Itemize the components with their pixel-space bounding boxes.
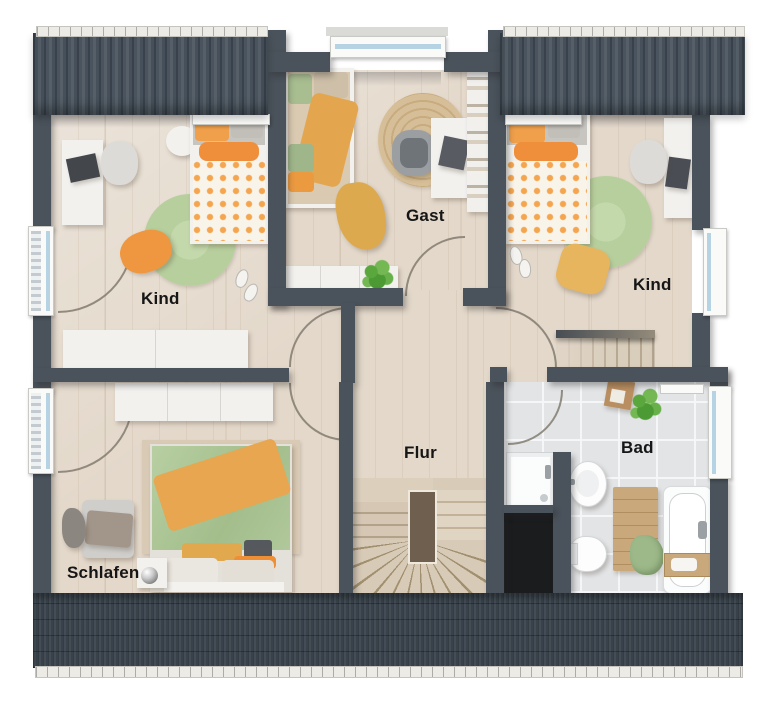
headboard — [164, 582, 284, 592]
stairs-straight — [556, 338, 655, 368]
armchair — [392, 130, 436, 176]
wall-gast-top-right — [444, 52, 506, 72]
room-label-kind-left: Kind — [141, 290, 180, 307]
towel-rail — [660, 384, 704, 394]
wall-bad-west — [486, 382, 504, 595]
stair-railing — [556, 330, 655, 338]
window-kind-left — [28, 226, 54, 316]
wall-void-top — [504, 505, 553, 513]
floor-throw — [62, 508, 86, 548]
roof-top-left — [33, 33, 268, 115]
gutter-top-right — [503, 26, 745, 37]
room-label-gast: Gast — [406, 207, 445, 224]
window-gast — [330, 36, 446, 58]
window-bad — [708, 386, 732, 479]
radiator — [31, 231, 41, 311]
desk-chair — [630, 140, 667, 184]
window-glass — [712, 391, 716, 474]
toilet — [569, 536, 607, 572]
room-label-kind-right: Kind — [633, 276, 672, 293]
bath-plant — [629, 385, 663, 425]
stairwell-void — [504, 513, 553, 593]
shower-faucet-icon — [545, 465, 551, 479]
wall-schlafen-right — [339, 382, 353, 595]
wall-right-mid — [692, 313, 710, 367]
bed — [504, 112, 590, 244]
pillow — [288, 74, 312, 104]
stool-cloth — [610, 389, 626, 404]
room-label-bad: Bad — [621, 439, 654, 456]
rolled-towel — [671, 558, 697, 571]
laptop — [665, 157, 691, 190]
wall-schlafen-top — [33, 368, 289, 382]
wall-left-lower — [33, 470, 51, 595]
window-glass — [46, 393, 50, 469]
desk-chair — [101, 141, 138, 185]
window-kind-right — [703, 228, 727, 316]
stairwell-spine — [408, 490, 437, 564]
double-bed — [150, 444, 292, 592]
roof-top-right — [500, 33, 745, 115]
desk — [62, 140, 103, 225]
wall-gast-bottom — [268, 288, 403, 306]
stairs-fade — [556, 338, 655, 368]
pillow — [166, 558, 218, 584]
window-glass — [335, 44, 441, 49]
bolster-cushion — [514, 142, 578, 161]
bathtub — [663, 486, 712, 594]
wall-left-upper — [33, 115, 51, 228]
bolster-cushion — [199, 142, 259, 161]
pillow — [288, 172, 314, 192]
table-lamp — [141, 567, 158, 584]
towel-green — [630, 535, 664, 575]
wall-gast-bottom-stub — [463, 288, 506, 306]
tub-caddy — [664, 553, 712, 577]
gutter-bottom — [35, 666, 743, 678]
pillow — [288, 144, 314, 172]
window-glass — [707, 233, 711, 311]
potted-plant — [361, 258, 395, 292]
wall-bad-top-west — [490, 367, 507, 382]
window-sill-gast — [326, 27, 448, 36]
wall-right-bad-lower — [710, 477, 728, 595]
shower — [506, 452, 555, 513]
bookshelf — [467, 68, 490, 212]
window-kind-left-top — [192, 114, 270, 125]
floor-plan: Kind Gast Kind Flur Bad Schlafen — [0, 0, 775, 705]
window-kind-right-top — [505, 114, 582, 125]
duvet-polka — [193, 161, 265, 241]
bed — [190, 112, 268, 244]
armchair-cushion — [400, 138, 428, 168]
wardrobe — [115, 383, 273, 421]
wall-bad-partition — [553, 452, 571, 593]
window-schlafen — [28, 388, 54, 474]
wall-hall-stub — [341, 303, 355, 383]
duvet-polka — [507, 161, 587, 241]
radiator — [31, 393, 41, 469]
wall-gast-top-left — [268, 52, 330, 72]
basin-bowl — [576, 470, 599, 497]
window-glass — [46, 231, 50, 311]
shower-drain — [540, 494, 548, 502]
wardrobe — [63, 330, 248, 368]
room-label-flur: Flur — [404, 444, 437, 461]
ottoman-blanket — [85, 510, 134, 548]
roof-bottom — [33, 593, 743, 668]
washbasin — [569, 461, 607, 507]
stairs-winder — [353, 478, 486, 593]
wall-right-upper — [692, 115, 710, 230]
gutter-top-left — [36, 26, 268, 37]
tub-faucet-icon — [698, 521, 707, 539]
room-label-schlafen: Schlafen — [67, 564, 139, 581]
wall-bad-top-east — [547, 367, 728, 382]
